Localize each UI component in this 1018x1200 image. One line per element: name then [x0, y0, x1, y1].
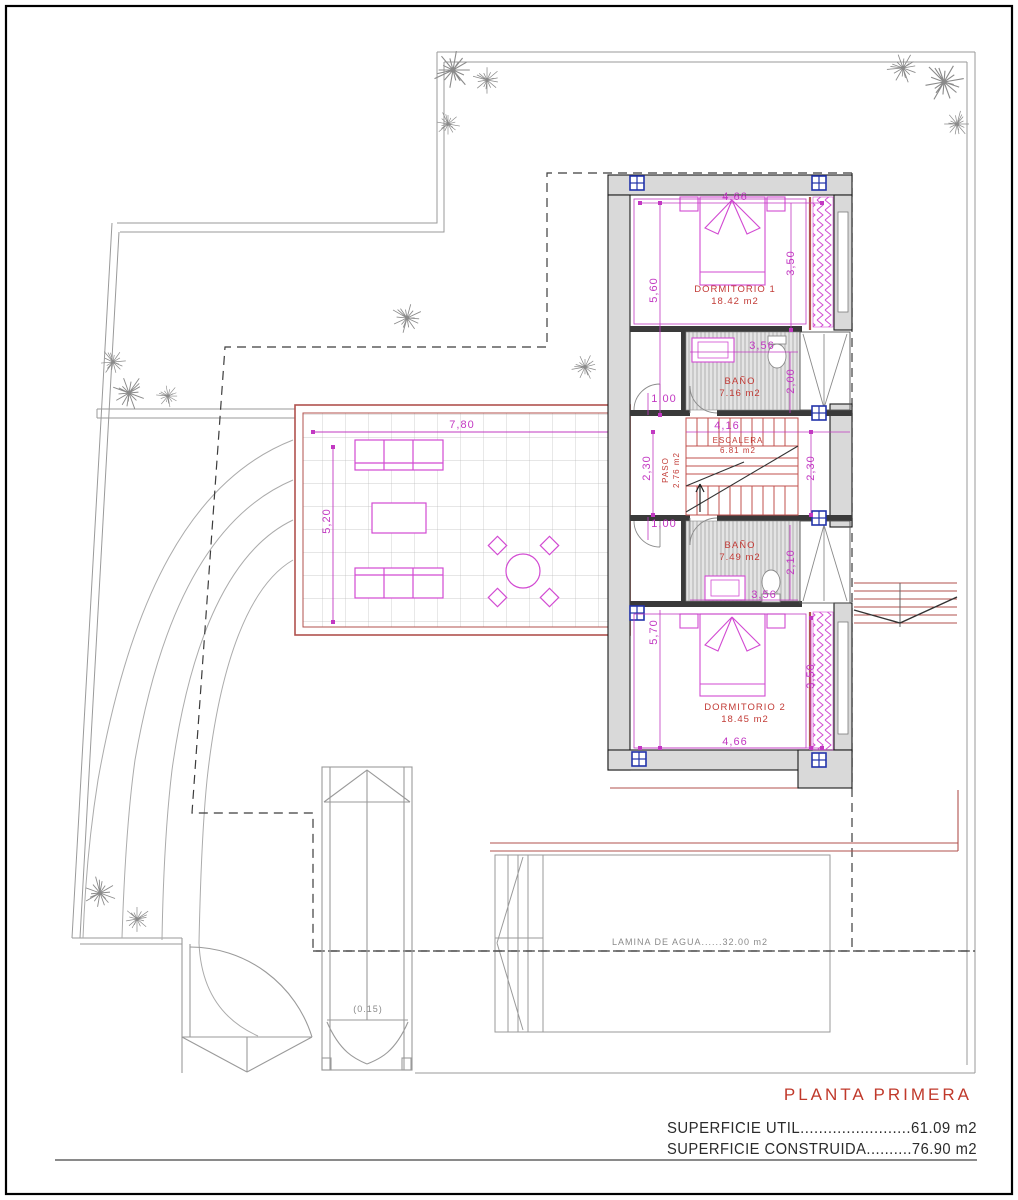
dim-dorm1-width: 4,66: [722, 191, 747, 203]
bedroom2-furniture: [680, 614, 785, 696]
coffee-table: [372, 503, 426, 533]
column: [812, 753, 826, 767]
exterior-stair: [854, 583, 957, 627]
column: [812, 406, 826, 420]
dim-dorm2-width: 4,66: [722, 736, 747, 748]
bedroom1-furniture: [680, 197, 785, 285]
tree-icon: [153, 381, 182, 410]
dim-terrace-height: 5,20: [321, 508, 333, 533]
room-label-dormitorio2: DORMITORIO 2: [704, 702, 786, 713]
tree-icon: [570, 352, 599, 382]
dim-dorm2-right: 3,50: [805, 663, 817, 688]
door-swing-arc: [327, 1022, 367, 1064]
tree-icon: [387, 297, 427, 337]
dim-hall-bottom: 1,00: [651, 518, 676, 530]
superficie-construida: SUPERFICIE CONSTRUIDA..........76.90 m2: [667, 1141, 977, 1158]
room-area-dormitorio1: 18.42 m2: [711, 296, 759, 307]
room-label-escalera: ESCALERA: [713, 436, 764, 445]
room-label-dormitorio1: DORMITORIO 1: [694, 284, 776, 295]
room-label-paso: PASO: [661, 457, 670, 483]
dim-dorm1-left: 5,60: [648, 277, 660, 302]
dim-hall-top: 1,00: [651, 393, 676, 405]
dim-paso-height: 2,30: [641, 455, 653, 480]
gate-swing-arc: [190, 947, 312, 1037]
nightstand: [767, 614, 785, 628]
plan-title: PLANTA PRIMERA: [784, 1085, 972, 1104]
column: [630, 176, 644, 190]
sofa: [355, 568, 443, 598]
room-label-bano1: BAÑO: [725, 376, 756, 387]
dim-stair-height: 2,30: [805, 455, 817, 480]
floor-plan-drawing: 4,66 3,50 5,60 DORMITORIO 1 18.42 m2 3,5…: [0, 0, 1018, 1200]
entrance-gate: [182, 938, 312, 1073]
column: [812, 176, 826, 190]
dim-terrace-width: 7,80: [449, 419, 474, 431]
tree-icon: [435, 51, 470, 88]
title-block: PLANTA PRIMERA SUPERFICIE UTIL..........…: [55, 1085, 977, 1160]
room-area-bano1: 7.16 m2: [719, 388, 760, 399]
window: [838, 212, 848, 312]
dim-stair-width: 4,16: [714, 420, 739, 432]
dim-dorm2-left: 5,70: [648, 619, 660, 644]
staircase: [686, 418, 798, 515]
tree-icon: [124, 905, 151, 933]
tree-icon: [108, 371, 151, 414]
carport: [322, 767, 412, 1070]
nightstand: [680, 614, 698, 628]
entrance-threshold-label: (0.15): [353, 1004, 383, 1014]
tree-icon: [437, 112, 460, 134]
dim-bano2-width: 3,56: [751, 589, 776, 601]
round-table: [506, 554, 540, 588]
column: [632, 752, 646, 766]
tree-icon: [920, 57, 969, 105]
tree-icon: [469, 61, 505, 97]
room-area-paso: 2.76 m2: [672, 452, 681, 488]
floor-plan-sheet: 4,66 3,50 5,60 DORMITORIO 1 18.42 m2 3,5…: [0, 0, 1018, 1200]
room-area-bano2: 7.49 m2: [719, 552, 760, 563]
tree-icon: [83, 875, 118, 909]
window: [838, 622, 848, 734]
dim-dorm1-right: 3,50: [785, 250, 797, 275]
wardrobe: [813, 197, 833, 327]
room-area-dormitorio2: 18.45 m2: [721, 714, 769, 725]
column: [812, 511, 826, 525]
tree-icon: [98, 347, 128, 376]
terrace: [295, 405, 630, 635]
superficie-util: SUPERFICIE UTIL........................6…: [667, 1120, 977, 1137]
driveway-curves: [83, 440, 293, 1036]
sofa: [355, 440, 443, 470]
pool-label: LAMINA DE AGUA......32.00 m2: [612, 937, 768, 947]
building-red-underlay: [627, 192, 830, 750]
dim-bano2-right: 2,10: [785, 549, 797, 574]
dim-bano1-right: 2,00: [785, 368, 797, 393]
room-label-bano2: BAÑO: [725, 540, 756, 551]
tree-icon: [884, 49, 920, 86]
room-area-escalera: 6.81 m2: [720, 446, 756, 455]
dim-bano1-width: 3,56: [749, 340, 774, 352]
tree-icon: [941, 107, 975, 141]
column: [630, 606, 644, 620]
